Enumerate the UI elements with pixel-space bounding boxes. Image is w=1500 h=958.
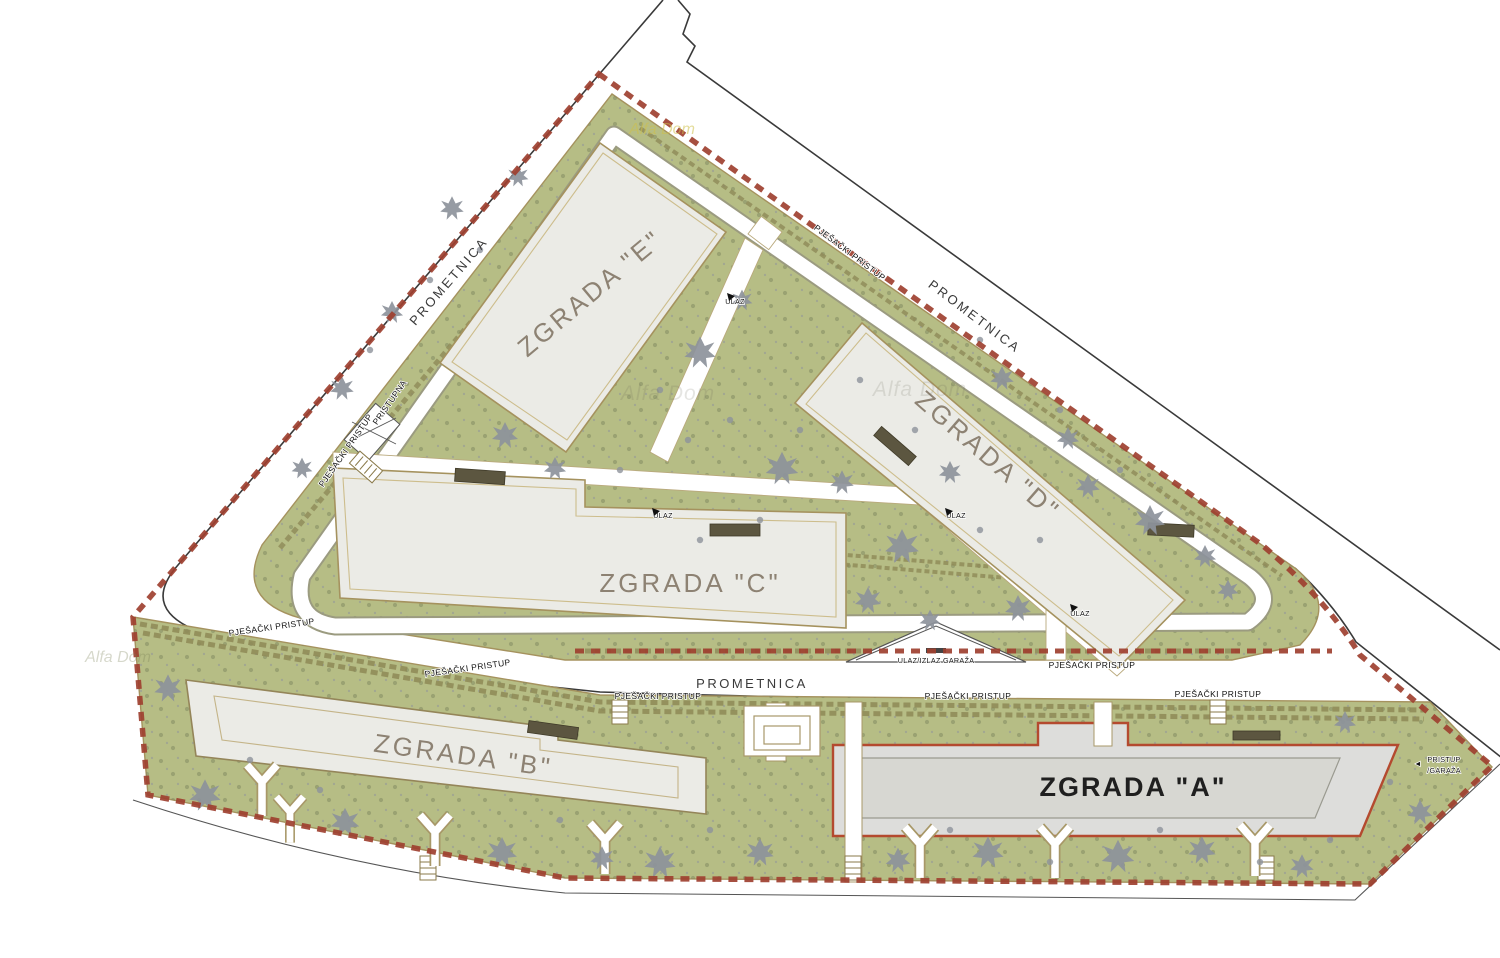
pedestrian-access-label: PJEŠAČKI PRISTUP [1175,689,1262,699]
pedestrian-access-label: PJEŠAČKI PRISTUP [1049,660,1136,670]
site-plan-drawing: ZGRADA "E" ZGRADA "D" ZGRADA "C" ZGRADA … [0,0,1500,958]
entrance-label: ULAZ [725,297,745,306]
garage-access-label-line2: /GARAŽA [1427,766,1461,775]
pedestrian-access-label: PJEŠAČKI PRISTUP [925,691,1012,701]
watermark-text: Alfa Dom [628,121,695,138]
pedestrian-access-label: PJEŠAČKI PRISTUP [615,691,702,701]
garage-access-label-line1: PRISTUP [1427,755,1460,764]
watermark-text: Alfa Dom [871,378,967,401]
watermark-text: Alfa Dom [84,649,151,666]
garage-access-arrow: ◄ [1414,759,1421,768]
building-c-label: ZGRADA "C" [599,568,780,598]
road-label-bottom: PROMETNICA [696,676,808,691]
garage-ramp-label: ULAZ/IZLAZ GARAŽA [898,656,975,665]
site-plan-page: ZGRADA "E" ZGRADA "D" ZGRADA "C" ZGRADA … [0,0,1500,958]
building-a-label: ZGRADA "A" [1039,772,1226,802]
watermark-text: Alfa Dom [619,382,715,405]
